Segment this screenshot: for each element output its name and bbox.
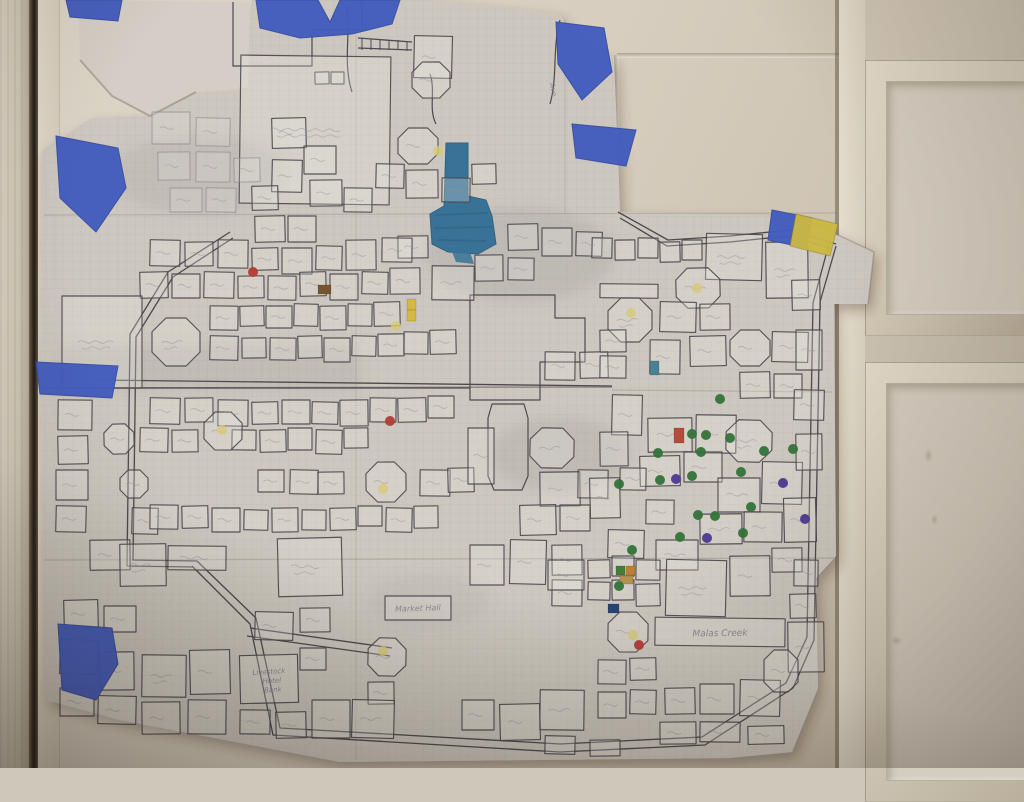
building [288,216,316,242]
yellow-sticker-dot [391,321,401,331]
building [196,118,231,147]
green-sticker-dot [614,581,624,591]
building-octagon [412,62,450,98]
building [660,242,680,262]
building [475,255,503,281]
building [150,398,181,425]
yellow-sticker-dot [628,630,638,640]
map-label: Bank [264,685,283,694]
building [172,274,200,298]
building [700,722,740,742]
green-sticker-dot [627,545,637,555]
building [730,556,770,596]
building [362,272,389,295]
building [638,238,658,258]
building [340,400,368,426]
building [270,338,296,360]
building [344,188,372,212]
building [320,306,346,330]
building [648,418,692,453]
building [58,400,92,430]
purple-sticker-dot [702,533,712,543]
red-sticker-dot [385,416,395,426]
building [630,658,657,681]
building [142,655,187,698]
building [792,280,821,311]
building [590,740,620,756]
building [406,170,438,198]
building [276,712,307,739]
red-sticker-dot [248,267,258,277]
building [189,650,230,695]
building [794,390,825,421]
building [170,188,202,212]
building [682,240,702,260]
building [182,506,209,529]
building [218,240,248,268]
building [300,608,330,632]
building [204,272,235,299]
building [344,428,368,448]
building [600,356,626,378]
building [324,338,350,362]
building [430,330,457,355]
building [272,508,298,532]
building [540,472,580,506]
building [432,266,474,301]
building [592,238,612,258]
building [660,722,696,744]
building [150,240,181,267]
building [234,158,261,183]
building [150,505,178,529]
building [298,336,323,359]
building [378,334,404,356]
green-sticker-dot [701,430,711,440]
building-octagon [368,638,407,677]
building [240,710,270,734]
building [508,258,534,280]
green-sticker-dot [653,448,663,458]
hand-drawn-map: Malas CreekMarket HallLivestockHotelBank… [0,0,1024,768]
building [612,395,643,436]
building [548,560,584,590]
building [304,146,336,174]
building [185,242,213,266]
building [509,540,546,585]
building [462,700,494,730]
building [212,508,240,532]
green-sticker-dot [736,467,746,477]
building [346,240,376,270]
building [252,402,279,425]
building [500,704,541,741]
purple-sticker-dot [800,514,810,524]
building [238,276,264,298]
green-sticker-dot [725,433,735,443]
building [277,537,342,597]
building [168,546,226,571]
building [196,152,230,182]
building [398,398,427,423]
building [560,505,590,531]
yellow-sticker-dot [378,646,388,656]
building [600,284,658,299]
building [172,430,198,452]
building [312,700,350,738]
building [620,468,646,490]
green-sticker-dot [687,471,697,481]
building [508,224,539,251]
blue-tape-strip [66,0,122,21]
building [608,530,645,559]
green-sticker-dot [746,502,756,512]
building [404,332,428,354]
building [545,736,575,755]
building [140,428,169,453]
marker-rect [626,566,635,575]
yellow-sticker-dot [433,146,443,156]
red-sticker-dot [634,640,644,650]
building [700,684,734,714]
building [600,432,628,466]
building [330,274,358,300]
purple-sticker-dot [778,478,788,488]
building [790,594,817,619]
building [636,560,660,580]
building [210,306,238,330]
building [255,612,294,641]
building [796,330,822,370]
green-sticker-dot [693,510,703,520]
building [282,248,312,274]
building [598,660,626,684]
marker-rect [407,299,416,310]
building [310,180,342,206]
green-sticker-dot [614,479,624,489]
building [744,512,782,542]
building [282,400,310,424]
map-label: Malas Creek [692,629,748,640]
green-sticker-dot [675,532,685,542]
building [665,688,696,715]
building [255,216,286,243]
building [316,430,343,455]
building [748,726,784,745]
building [56,506,87,533]
yellow-sticker-dot [626,308,636,318]
building [266,306,292,328]
building [98,696,137,725]
building [665,559,726,616]
building [318,472,344,494]
building [636,584,661,607]
building [352,336,376,357]
building-octagon [104,424,135,455]
building [352,699,395,738]
building [442,178,470,202]
marker-rect [318,285,331,294]
building [348,304,372,326]
building [630,690,657,715]
building [386,508,413,533]
marker-streak [438,240,486,241]
building [600,330,626,352]
building [302,510,326,530]
building [358,506,382,526]
building [588,560,610,579]
building-octagon [120,470,148,498]
building [330,508,357,531]
green-sticker-dot [655,475,665,485]
building [390,268,420,294]
yellow-sticker-dot [217,425,227,435]
green-sticker-dot [738,528,748,538]
building [598,692,626,718]
green-sticker-dot [687,429,697,439]
marker-rect [608,604,619,613]
building [545,352,575,380]
building [152,112,190,144]
marker-rect [674,428,684,443]
building [294,304,319,327]
building [740,372,771,399]
building [252,186,279,211]
building [206,188,237,213]
building [472,164,496,185]
yellow-sticker-dot [378,484,388,494]
building-octagon [764,650,798,692]
building [783,498,816,543]
building [470,545,504,585]
building [242,338,266,358]
building [588,582,610,601]
building [414,506,438,528]
building [272,118,307,149]
green-sticker-dot [696,447,706,457]
building [252,248,279,271]
building-octagon [398,128,438,164]
building [646,500,674,524]
marker-rect [650,361,659,375]
building [520,505,557,536]
building [268,276,296,300]
building [188,700,226,734]
building [300,648,326,670]
building [420,470,450,496]
building [290,470,319,495]
building [58,436,89,465]
building-octagon [366,462,406,502]
building [428,396,454,418]
building [142,702,180,734]
photo-of-map-on-door: { "colors":{ "ink":"#46424c","pencil":"#… [0,0,1024,768]
building [382,238,412,262]
building [796,434,822,470]
building [376,164,405,189]
building [468,428,494,484]
building-octagon [730,330,770,366]
blue-tape-strip [36,362,118,398]
marker-streak [434,227,492,228]
building [158,152,190,180]
building [288,428,312,450]
marker-rect [407,310,416,321]
green-sticker-dot [759,446,769,456]
green-sticker-dot [710,511,720,521]
building [542,228,572,256]
building [260,430,287,453]
building [660,302,697,333]
map-label: Market Hall [395,603,442,614]
building [316,246,343,271]
building [140,272,169,299]
purple-sticker-dot [671,474,681,484]
building [540,690,584,731]
building [56,470,88,500]
building-octagon [530,427,575,468]
green-sticker-dot [715,394,725,404]
building [64,600,99,629]
building [210,336,239,361]
building [312,402,339,425]
map-label: Hotel [262,676,281,685]
marker-rect [616,566,625,575]
building [690,336,727,367]
building [258,470,284,492]
building [240,306,264,327]
yellow-sticker-dot [692,283,702,293]
green-sticker-dot [788,444,798,454]
building [244,510,268,531]
building [615,240,635,260]
building [700,304,730,330]
